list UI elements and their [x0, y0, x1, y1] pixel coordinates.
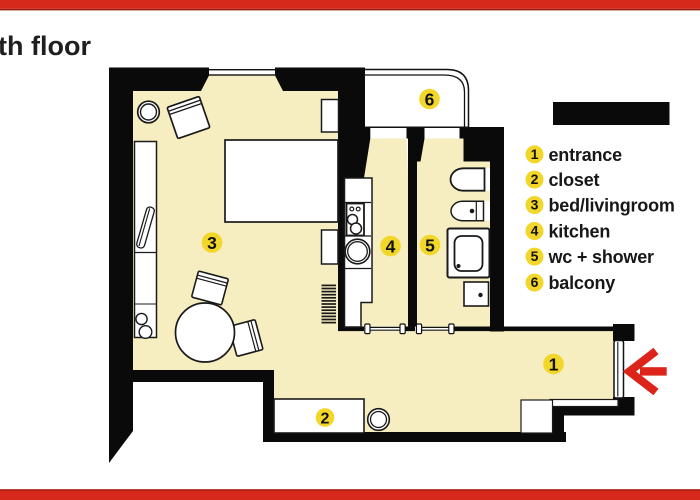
svg-text:closet: closet — [549, 170, 600, 190]
svg-text:5: 5 — [425, 235, 435, 255]
svg-text:6: 6 — [425, 89, 435, 109]
svg-text:entrance: entrance — [549, 145, 623, 165]
svg-text:3: 3 — [207, 233, 217, 253]
svg-text:wc + shower: wc + shower — [548, 247, 655, 267]
svg-text:th floor: th floor — [0, 31, 91, 61]
svg-text:1: 1 — [549, 354, 559, 374]
svg-text:5: 5 — [531, 248, 539, 264]
svg-text:3: 3 — [531, 197, 539, 213]
svg-text:1: 1 — [531, 146, 539, 162]
svg-text:4: 4 — [386, 236, 396, 256]
svg-text:4: 4 — [531, 223, 539, 239]
svg-text:6: 6 — [531, 274, 539, 290]
svg-text:bed/livingroom: bed/livingroom — [549, 196, 675, 216]
svg-text:kitchen: kitchen — [549, 222, 611, 242]
svg-text:2: 2 — [321, 411, 330, 428]
svg-text:2: 2 — [531, 171, 539, 187]
svg-text:balcony: balcony — [549, 273, 616, 293]
